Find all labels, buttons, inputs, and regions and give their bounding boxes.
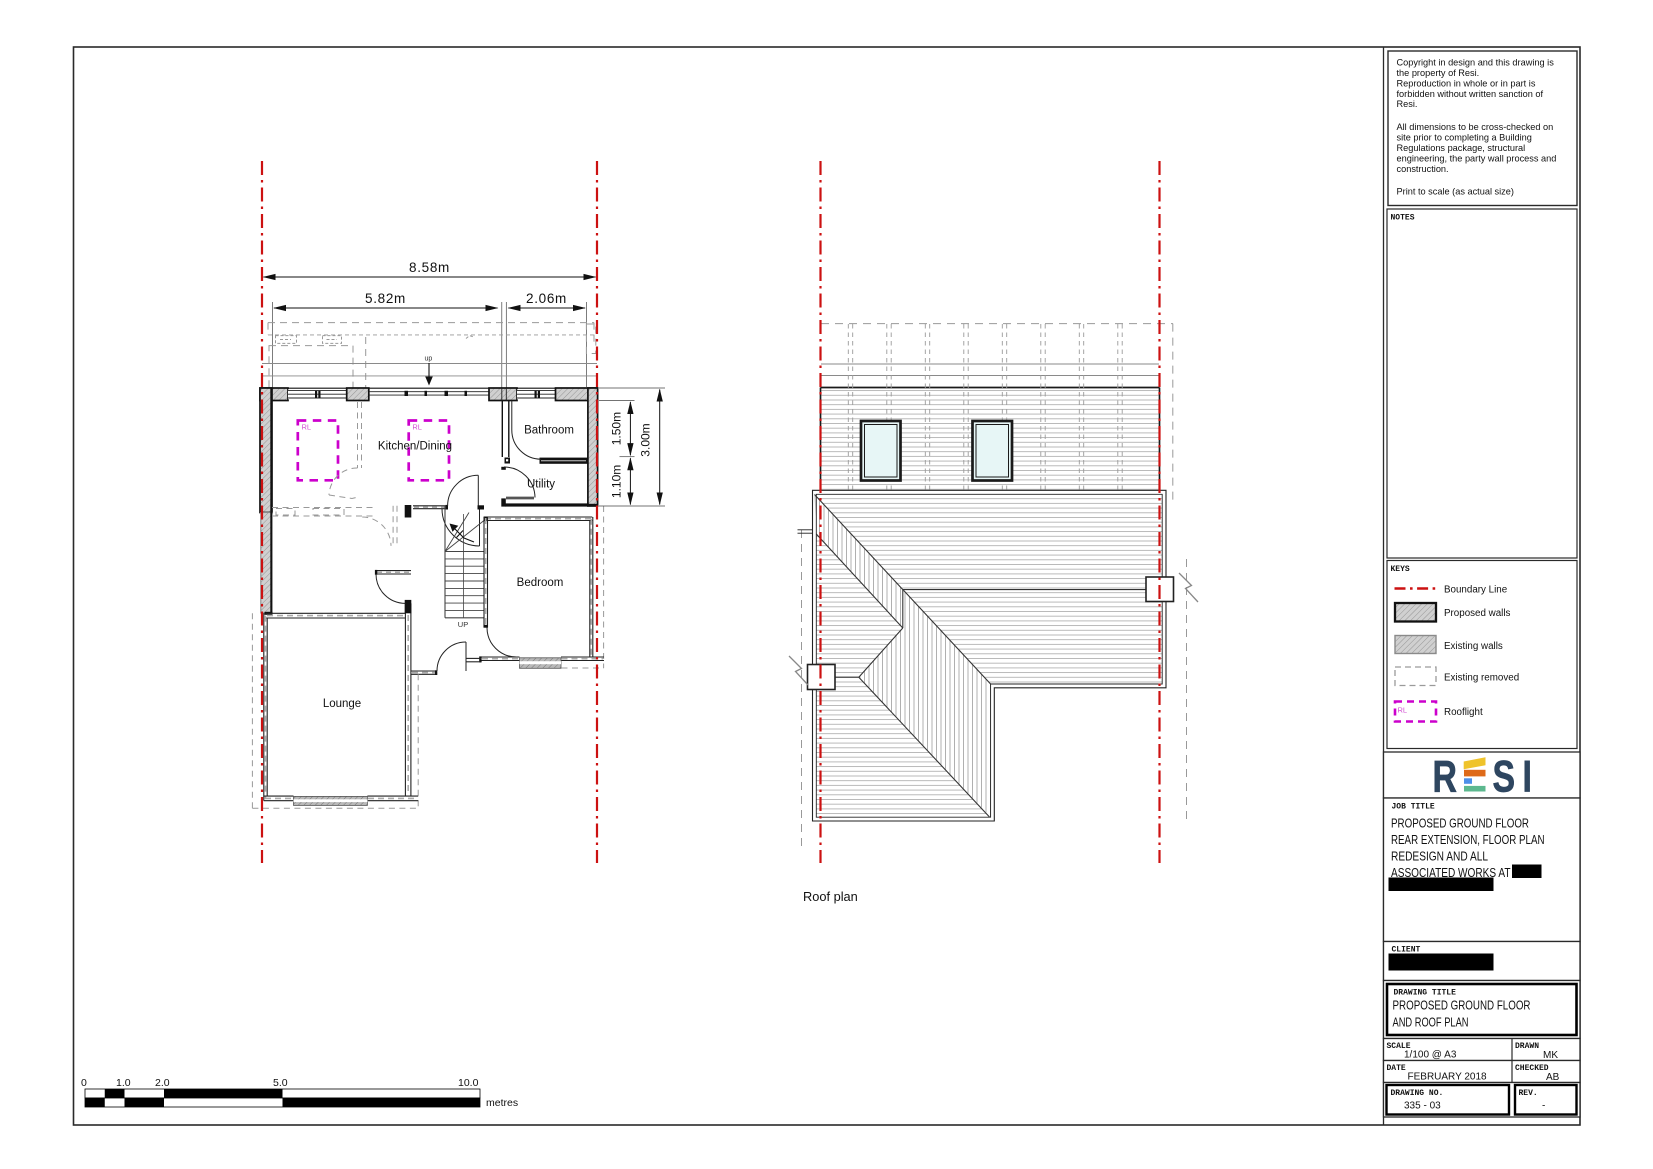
- svg-text:CLIENT: CLIENT: [1392, 946, 1421, 955]
- svg-text:Rooflight: Rooflight: [1444, 707, 1483, 718]
- svg-text:Copyright in design and this d: Copyright in design and this drawing is: [1397, 58, 1555, 68]
- svg-text:DRAWING TITLE: DRAWING TITLE: [1394, 989, 1457, 998]
- svg-text:0: 0: [81, 1077, 87, 1089]
- svg-text:I: I: [1523, 752, 1532, 802]
- svg-text:DATE: DATE: [1387, 1064, 1406, 1073]
- svg-text:FEBRUARY 2018: FEBRUARY 2018: [1408, 1072, 1488, 1083]
- svg-text:JOB TITLE: JOB TITLE: [1392, 803, 1435, 812]
- svg-text:UP: UP: [458, 620, 468, 629]
- svg-text:forbidden without written sanc: forbidden without written sanction of: [1397, 89, 1544, 99]
- svg-text:Existing walls: Existing walls: [1444, 641, 1503, 652]
- svg-text:335 - 03: 335 - 03: [1404, 1101, 1441, 1112]
- svg-text:Kitchen/Dining: Kitchen/Dining: [378, 441, 452, 453]
- svg-text:1.0: 1.0: [116, 1077, 131, 1089]
- svg-text:PROPOSED GROUND FLOOR: PROPOSED GROUND FLOOR: [1391, 817, 1529, 831]
- svg-text:PROPOSED GROUND FLOOR: PROPOSED GROUND FLOOR: [1393, 999, 1531, 1013]
- svg-text:RL: RL: [1398, 706, 1408, 715]
- svg-text:the property of Resi.: the property of Resi.: [1397, 68, 1480, 78]
- svg-text:2.0: 2.0: [155, 1077, 170, 1089]
- svg-text:1/100 @ A3: 1/100 @ A3: [1404, 1050, 1457, 1061]
- svg-text:AB: AB: [1546, 1072, 1560, 1083]
- svg-text:up: up: [425, 356, 433, 363]
- svg-text:REV.: REV.: [1519, 1089, 1538, 1098]
- svg-text:S: S: [1493, 752, 1516, 802]
- svg-text:Proposed walls: Proposed walls: [1444, 608, 1511, 619]
- svg-text:2.06m: 2.06m: [526, 291, 567, 306]
- svg-text:1.10m: 1.10m: [610, 465, 624, 498]
- svg-text:REDESIGN AND ALL: REDESIGN AND ALL: [1391, 850, 1488, 864]
- svg-text:KEYS: KEYS: [1391, 565, 1410, 574]
- svg-text:RL: RL: [412, 423, 422, 432]
- svg-text:5.0: 5.0: [273, 1077, 288, 1089]
- svg-text:Bedroom: Bedroom: [517, 577, 564, 589]
- svg-text:CHECKED: CHECKED: [1515, 1064, 1549, 1073]
- svg-text:REAR EXTENSION, FLOOR PLAN: REAR EXTENSION, FLOOR PLAN: [1391, 833, 1545, 847]
- svg-text:DRAWN: DRAWN: [1515, 1042, 1539, 1051]
- svg-text:Utility: Utility: [527, 479, 555, 491]
- svg-text:R: R: [1433, 752, 1457, 802]
- svg-text:Regulations package, structura: Regulations package, structural: [1397, 143, 1526, 153]
- svg-text:Lounge: Lounge: [323, 698, 361, 710]
- svg-text:Existing removed: Existing removed: [1444, 673, 1519, 684]
- svg-text:Print to scale (as actual size: Print to scale (as actual size): [1397, 186, 1514, 196]
- svg-text:All dimensions to be cross-che: All dimensions to be cross-checked on: [1397, 122, 1554, 132]
- svg-text:Reproduction in whole or in pa: Reproduction in whole or in part is: [1397, 78, 1536, 88]
- svg-text:Bathroom: Bathroom: [524, 425, 574, 437]
- svg-text:NOTES: NOTES: [1391, 214, 1415, 223]
- svg-text:Roof plan: Roof plan: [803, 889, 858, 904]
- svg-text:Resi.: Resi.: [1397, 99, 1418, 109]
- svg-text:8.58m: 8.58m: [409, 260, 450, 275]
- svg-text:DRAWING NO.: DRAWING NO.: [1391, 1089, 1444, 1098]
- svg-text:RL: RL: [302, 423, 312, 432]
- svg-text:5.82m: 5.82m: [365, 291, 406, 306]
- svg-text:1.50m: 1.50m: [610, 412, 624, 445]
- svg-text:-: -: [1542, 1101, 1545, 1112]
- svg-text:10.0: 10.0: [458, 1077, 479, 1089]
- svg-text:engineering, the party wall pr: engineering, the party wall process and: [1397, 154, 1557, 164]
- svg-text:metres: metres: [486, 1097, 518, 1109]
- svg-text:MK: MK: [1543, 1050, 1558, 1061]
- svg-text:site prior to completing a Bui: site prior to completing a Building: [1397, 132, 1532, 142]
- svg-text:construction.: construction.: [1397, 164, 1449, 174]
- svg-text:Boundary Line: Boundary Line: [1444, 585, 1508, 596]
- svg-text:AND ROOF PLAN: AND ROOF PLAN: [1393, 1016, 1469, 1030]
- svg-text:3.00m: 3.00m: [639, 423, 653, 456]
